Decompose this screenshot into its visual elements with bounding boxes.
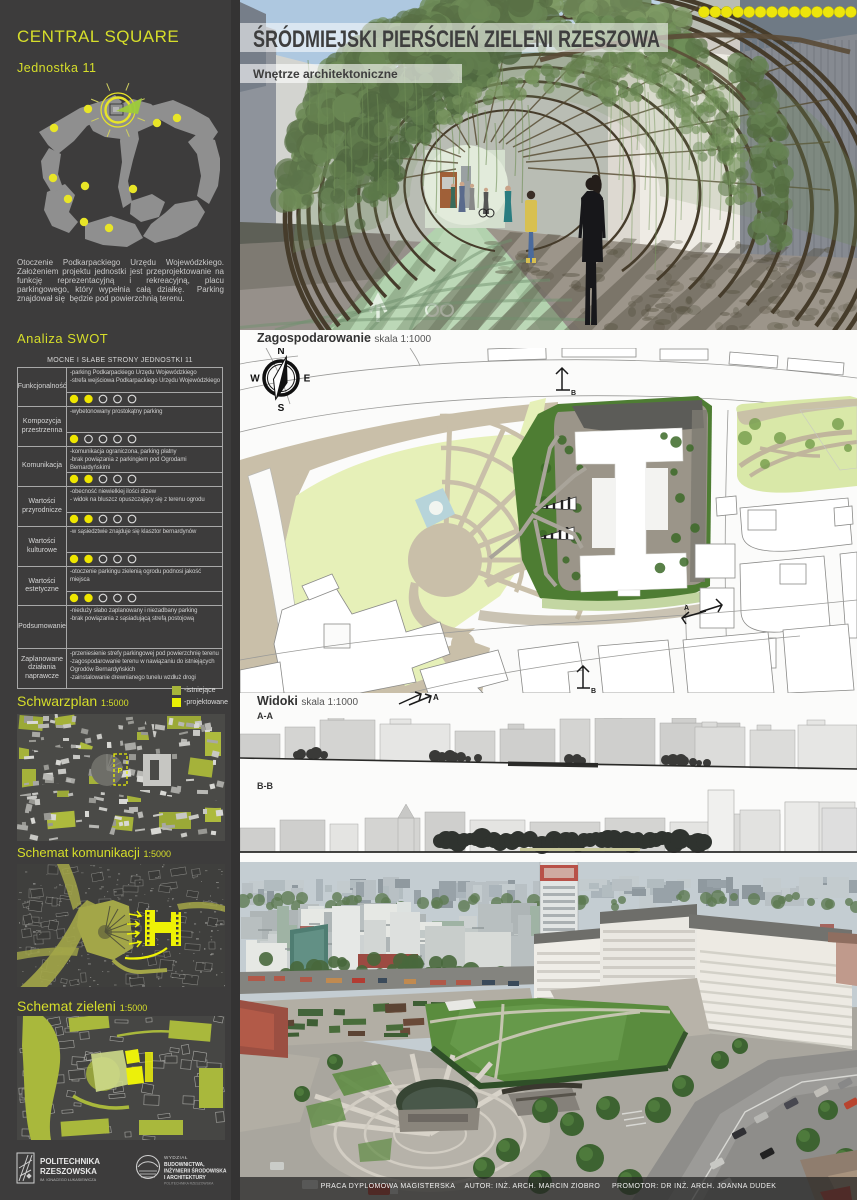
svg-text:WYDZIAŁ: WYDZIAŁ xyxy=(164,1155,188,1160)
svg-text:IM. IGNACEGO ŁUKASIEWICZA: IM. IGNACEGO ŁUKASIEWICZA xyxy=(40,1178,97,1182)
svg-text:RZESZOWSKA: RZESZOWSKA xyxy=(40,1167,97,1176)
svg-text:N: N xyxy=(277,348,284,357)
svg-text:P: P xyxy=(118,768,123,775)
svg-text:E: E xyxy=(304,374,311,385)
svg-text:A: A xyxy=(433,693,439,702)
svg-text:B: B xyxy=(591,688,596,693)
svg-text:INŻYNIERII ŚRODOWISKA: INŻYNIERII ŚRODOWISKA xyxy=(164,1168,227,1175)
svg-text:I ARCHITEKTURY: I ARCHITEKTURY xyxy=(164,1175,207,1181)
svg-text:B: B xyxy=(571,390,576,397)
svg-text:POLITECHNIKA RZESZOWSKA: POLITECHNIKA RZESZOWSKA xyxy=(164,1182,214,1186)
svg-text:S: S xyxy=(278,403,285,414)
svg-text:BUDOWNICTWA,: BUDOWNICTWA, xyxy=(164,1162,205,1168)
svg-text:W: W xyxy=(250,374,260,385)
svg-text:A: A xyxy=(684,605,689,612)
svg-text:POLITECHNIKA: POLITECHNIKA xyxy=(40,1157,100,1166)
